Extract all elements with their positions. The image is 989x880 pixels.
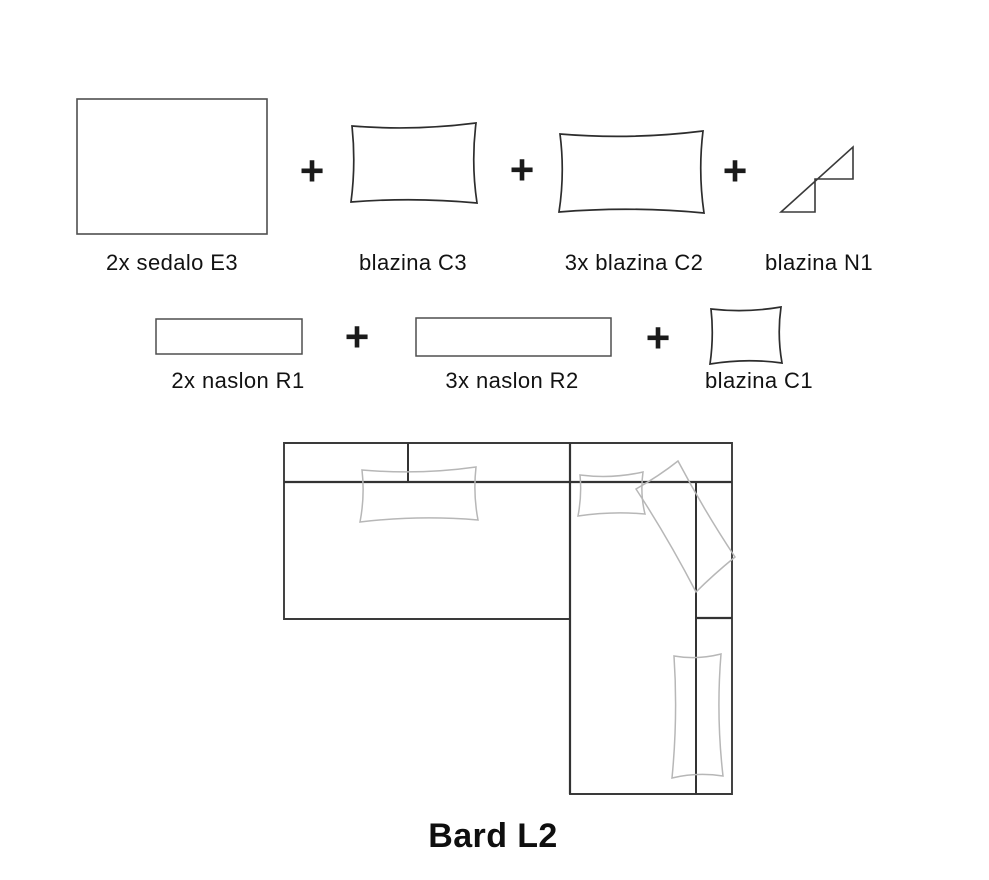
sedalo-e3-shape	[76, 98, 268, 235]
component-diagram-page: + + + 2x sedalo E3 blazina C3 3x blazina…	[0, 0, 989, 880]
product-title: Bard L2	[293, 817, 693, 856]
plus-icon: +	[288, 147, 336, 195]
blazina-c3-pillow-shape	[348, 118, 480, 208]
blazina-c1-label: blazina C1	[649, 368, 869, 394]
blazina-c3-label: blazina C3	[303, 250, 523, 276]
plus-icon: +	[498, 146, 546, 194]
naslon-r2-shape	[415, 317, 612, 357]
plus-icon: +	[711, 147, 759, 195]
blazina-c2-pillow-shape	[555, 127, 708, 217]
naslon-r1-label: 2x naslon R1	[128, 368, 348, 394]
blazina-n1-shape	[778, 145, 855, 215]
naslon-r2-label: 3x naslon R2	[402, 368, 622, 394]
sedalo-e3-label: 2x sedalo E3	[62, 250, 282, 276]
sofa-outline	[284, 443, 732, 794]
blazina-c1-pillow-shape	[707, 303, 785, 367]
plus-icon: +	[333, 313, 381, 361]
sofa-top-view-diagram	[283, 442, 743, 798]
naslon-r1-shape	[155, 318, 303, 355]
plus-icon: +	[634, 314, 682, 362]
blazina-n1-label: blazina N1	[709, 250, 929, 276]
